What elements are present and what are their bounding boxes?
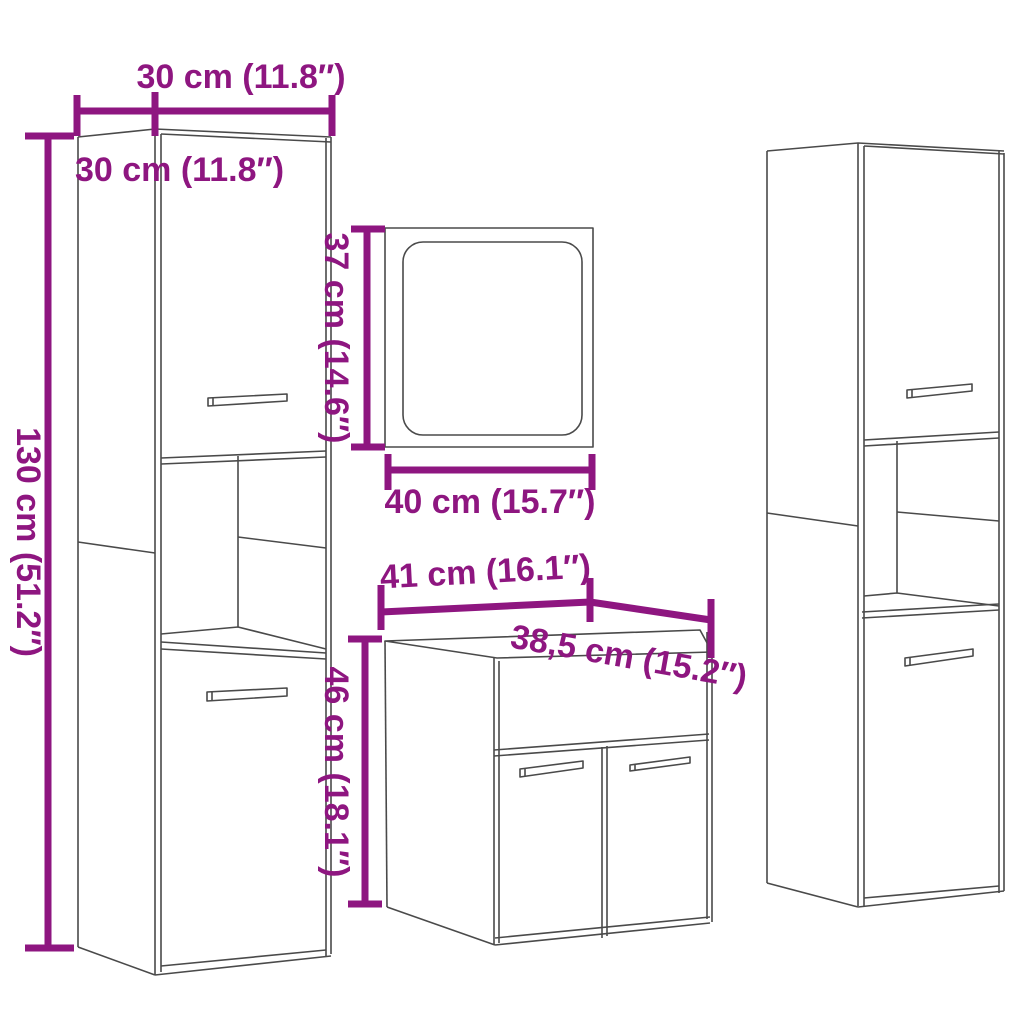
mirror-drawing [385, 228, 593, 447]
label-mirror-height: 37 cm (14.6″) [317, 233, 355, 444]
label-tall-cabinet-height: 130 cm (51.2″) [9, 427, 47, 657]
upper-door-handle [208, 394, 287, 406]
sink-right-door-handle [630, 757, 690, 771]
label-mirror-width: 40 cm (15.7″) [385, 483, 596, 521]
upper-door-handle [907, 384, 972, 398]
right-tall-cabinet-drawing [767, 143, 1004, 907]
sink-left-door-handle [520, 761, 583, 777]
diagram-canvas: 30 cm (11.8″) 30 cm (11.8″) 130 cm (51.2… [0, 0, 1024, 1024]
lower-door-handle [905, 649, 973, 666]
dimension-lines [25, 92, 711, 948]
label-sink-cabinet-height: 46 cm (18.1″) [317, 667, 355, 878]
label-tall-cabinet-depth: 30 cm (11.8″) [75, 151, 284, 189]
label-sink-cabinet-width: 41 cm (16.1″) [379, 548, 592, 597]
lower-door-handle [207, 688, 287, 701]
left-tall-cabinet-drawing [78, 129, 331, 975]
dimension-labels: 30 cm (11.8″) 30 cm (11.8″) 130 cm (51.2… [9, 58, 750, 877]
product-dimension-diagram: 30 cm (11.8″) 30 cm (11.8″) 130 cm (51.2… [0, 0, 1024, 1024]
label-tall-cabinet-width: 30 cm (11.8″) [136, 58, 345, 96]
